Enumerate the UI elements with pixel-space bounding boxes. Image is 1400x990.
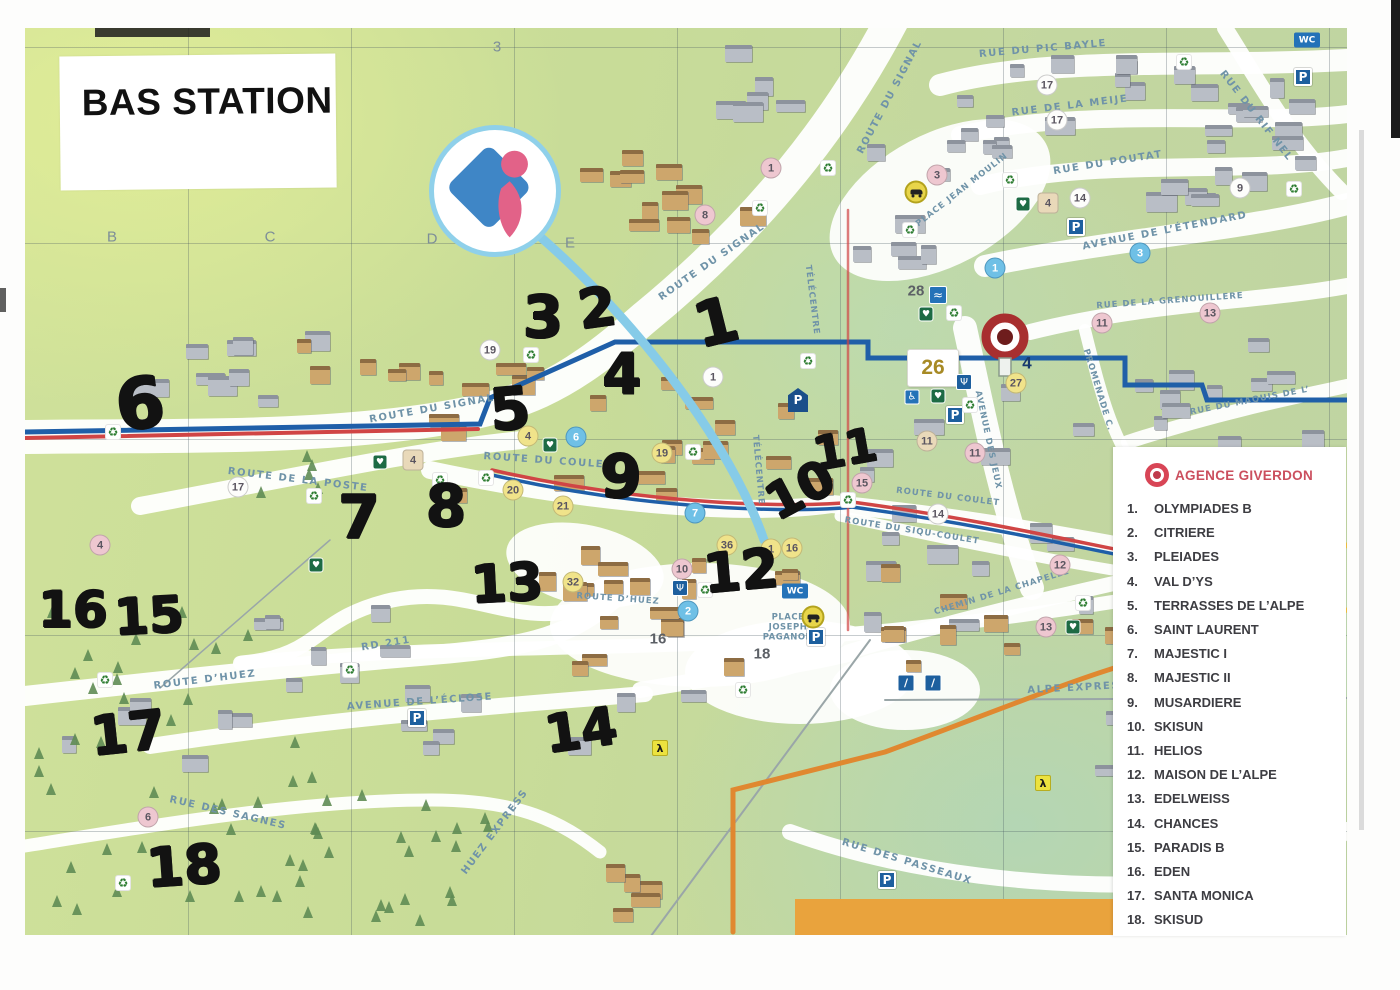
map-marker: 13	[1200, 303, 1221, 324]
handwritten-number: 7	[338, 483, 380, 553]
legend-item-label: SKISUD	[1154, 908, 1203, 932]
map-marker: 10	[672, 559, 693, 580]
legend-item: 3.PLEIADES	[1127, 545, 1336, 569]
map-marker: 21	[553, 496, 574, 517]
parking-icon: P	[1294, 68, 1312, 86]
map-marker: 9	[1230, 178, 1251, 199]
map-marker: 20	[503, 480, 524, 501]
map-marker: 18	[752, 644, 773, 665]
pool-icon: ≈	[929, 286, 947, 304]
map-marker: 11	[1092, 313, 1113, 334]
legend-item-label: PARADIS B	[1154, 836, 1225, 860]
recycle-icon: ♻	[1176, 54, 1192, 70]
page-title: BAS STATION	[82, 80, 336, 125]
legend-item-number: 9.	[1127, 691, 1154, 715]
map-marker: 6	[138, 807, 159, 828]
legend-item: 9.MUSARDIERE	[1127, 691, 1336, 715]
legend-item-number: 2.	[1127, 521, 1154, 545]
title-box: BAS STATION	[59, 54, 336, 191]
grid-label: 3	[493, 39, 501, 56]
map-marker: 26	[907, 349, 959, 387]
map-marker: 3	[927, 165, 948, 186]
map-marker: 3	[1130, 243, 1151, 264]
legend-item: 8.MAJESTIC II	[1127, 666, 1336, 690]
parking-icon: P	[807, 628, 825, 646]
map-marker: 27	[1006, 373, 1027, 394]
legend-item-number: 7.	[1127, 642, 1154, 666]
wc-icon: WC	[782, 584, 808, 599]
legend-item-number: 10.	[1127, 715, 1154, 739]
map-marker: 6	[566, 427, 587, 448]
legend-item-number: 5.	[1127, 594, 1154, 618]
defib-icon: ♥	[309, 558, 324, 573]
map-marker: 15	[852, 473, 873, 494]
map-marker: 17	[228, 477, 249, 498]
map-marker: 1	[985, 258, 1006, 279]
recycle-icon: ♻	[902, 222, 918, 238]
legend-item-number: 17.	[1127, 884, 1154, 908]
legend-item: 11.HELIOS	[1127, 739, 1336, 763]
handwritten-number: 14	[541, 696, 621, 765]
legend-header: AGENCE GIVERDON	[1145, 463, 1336, 487]
legend-item: 17.SANTA MONICA	[1127, 884, 1336, 908]
handwritten-number: 9	[600, 442, 642, 512]
grid-label: D	[427, 231, 438, 248]
legend-item-label: EDEN	[1154, 860, 1190, 884]
legend-item-label: MAJESTIC II	[1154, 666, 1231, 690]
map-marker: 1	[703, 367, 724, 388]
legend-item: 6.SAINT LAURENT	[1127, 618, 1336, 642]
recycle-icon: ♻	[800, 353, 816, 369]
skate-icon: /	[898, 675, 915, 692]
plug-icon: Ψ	[672, 580, 688, 596]
tourist-info-logo	[429, 125, 561, 257]
agency-name: AGENCE GIVERDON	[1175, 468, 1313, 483]
legend-item-label: EDELWEISS	[1154, 787, 1230, 811]
grid-label: B	[107, 229, 117, 246]
handwritten-number: 12	[701, 536, 781, 605]
handwritten-number: 3	[523, 283, 563, 351]
map-marker: 8	[695, 205, 716, 226]
map-marker: 4	[1038, 193, 1059, 214]
grid-label: E	[565, 235, 575, 252]
parking-icon: P	[878, 871, 896, 889]
recycle-icon: ♻	[735, 682, 751, 698]
legend-item: 2.CITRIERE	[1127, 521, 1336, 545]
map-marker: 19	[652, 443, 673, 464]
map-marker: 17	[1037, 75, 1058, 96]
map-marker: 11	[965, 443, 986, 464]
plug-icon: Ψ	[956, 374, 972, 390]
defib-icon: ♥	[543, 438, 558, 453]
legend-item: 7.MAJESTIC I	[1127, 642, 1336, 666]
map-marker: 16	[648, 629, 669, 650]
recycle-icon: ♻	[115, 875, 131, 891]
handwritten-number: 13	[469, 552, 544, 616]
legend-item-number: 3.	[1127, 545, 1154, 569]
car-icon	[905, 181, 928, 204]
legend-item-label: OLYMPIADES B	[1154, 497, 1252, 521]
recycle-icon: ♻	[962, 397, 978, 413]
defib-icon: ♥	[373, 455, 388, 470]
recycle-icon: ♻	[342, 662, 358, 678]
scan-artifact	[0, 288, 6, 312]
parking-icon: P	[1067, 218, 1085, 236]
map-marker: 1	[761, 158, 782, 179]
legend-item-label: HELIOS	[1154, 739, 1202, 763]
legend-item-number: 6.	[1127, 618, 1154, 642]
legend-item-label: MAISON DE L’ALPE	[1154, 763, 1277, 787]
legend-list: 1.OLYMPIADES B2.CITRIERE3.PLEIADES4.VAL …	[1127, 497, 1336, 933]
scanned-resort-map-page: ROUTE DU SIGNALROUTE DU SIGNALROUTE DU S…	[0, 0, 1400, 990]
recycle-icon: ♻	[306, 488, 322, 504]
handwritten-number: 16	[38, 581, 108, 639]
handwritten-number: 5	[487, 373, 533, 444]
page-edge-shadow	[1359, 130, 1364, 830]
legend-item-label: VAL D’YS	[1154, 570, 1213, 594]
scan-artifact	[1391, 0, 1400, 138]
map-marker: 4	[403, 450, 424, 471]
hiker-icon: λ	[652, 740, 668, 756]
legend-item-label: PLEIADES	[1154, 545, 1219, 569]
map-marker: 32	[563, 572, 584, 593]
legend-panel: AGENCE GIVERDON 1.OLYMPIADES B2.CITRIERE…	[1113, 447, 1346, 936]
legend-item-number: 18.	[1127, 908, 1154, 932]
map-marker: 17	[1047, 110, 1068, 131]
map-marker: 2	[678, 601, 699, 622]
legend-item: 12.MAISON DE L’ALPE	[1127, 763, 1336, 787]
legend-item-label: TERRASSES DE L’ALPE	[1154, 594, 1304, 618]
legend-item-number: 13.	[1127, 787, 1154, 811]
legend-item: 15.PARADIS B	[1127, 836, 1336, 860]
map-marker: 13	[1036, 617, 1057, 638]
map-marker: 4	[1017, 353, 1038, 374]
defib-icon: ♥	[1016, 197, 1031, 212]
legend-item-number: 1.	[1127, 497, 1154, 521]
legend-item: 4.VAL D’YS	[1127, 570, 1336, 594]
legend-item: 14.CHANCES	[1127, 812, 1336, 836]
legend-item-number: 8.	[1127, 666, 1154, 690]
legend-item: 10.SKISUN	[1127, 715, 1336, 739]
map-marker: 19	[480, 340, 501, 361]
handwritten-number: 8	[426, 472, 466, 540]
handwritten-number: 17	[87, 698, 168, 769]
map-marker: 4	[90, 535, 111, 556]
map-marker: 12	[1050, 555, 1071, 576]
hiker-icon: λ	[1035, 775, 1051, 791]
recycle-icon: ♻	[1286, 181, 1302, 197]
map-marker: 16	[782, 538, 803, 559]
sledge-icon: /	[925, 675, 942, 692]
handwritten-number: 4	[603, 343, 642, 408]
map-marker: 7	[685, 503, 706, 524]
legend-item-label: SANTA MONICA	[1154, 884, 1254, 908]
car-icon	[802, 606, 825, 629]
handwritten-number: 15	[113, 585, 186, 647]
handwritten-number: 18	[144, 832, 223, 900]
agency-logo-icon	[1145, 463, 1169, 487]
map-marker: 28	[906, 281, 927, 302]
recycle-icon: ♻	[1075, 595, 1091, 611]
map-marker: 14	[928, 504, 949, 525]
map-marker: 14	[1070, 188, 1091, 209]
scan-artifact	[95, 28, 210, 37]
wheelchair-icon: ♿	[905, 390, 920, 405]
legend-item-label: CITRIERE	[1154, 521, 1215, 545]
legend-item-number: 11.	[1127, 739, 1154, 763]
parking-icon: P	[408, 709, 426, 727]
legend-item-number: 4.	[1127, 570, 1154, 594]
recycle-icon: ♻	[478, 470, 494, 486]
recycle-icon: ♻	[1002, 172, 1018, 188]
handwritten-number: 11	[809, 417, 881, 481]
legend-item-label: CHANCES	[1154, 812, 1218, 836]
legend-item-number: 15.	[1127, 836, 1154, 860]
legend-item-number: 12.	[1127, 763, 1154, 787]
legend-item-label: MUSARDIERE	[1154, 691, 1241, 715]
legend-item-label: SKISUN	[1154, 715, 1203, 739]
legend-item: 5.TERRASSES DE L’ALPE	[1127, 594, 1336, 618]
legend-item-label: MAJESTIC I	[1154, 642, 1227, 666]
map-marker: 11	[917, 431, 938, 452]
recycle-icon: ♻	[97, 672, 113, 688]
defib-icon: ♥	[919, 307, 934, 322]
defib-icon: ♥	[1066, 620, 1081, 635]
wc-icon: WC	[1294, 33, 1320, 48]
grid-label: C	[265, 229, 276, 246]
legend-item-number: 16.	[1127, 860, 1154, 884]
legend-item: 1.OLYMPIADES B	[1127, 497, 1336, 521]
legend-item-label: SAINT LAURENT	[1154, 618, 1259, 642]
info-logo-glyph	[434, 130, 556, 252]
recycle-icon: ♻	[946, 305, 962, 321]
legend-item: 18.SKISUD	[1127, 908, 1336, 932]
recycle-icon: ♻	[685, 444, 701, 460]
legend-item-number: 14.	[1127, 812, 1154, 836]
defib-icon: ♥	[931, 389, 946, 404]
legend-item: 16.EDEN	[1127, 860, 1336, 884]
recycle-icon: ♻	[752, 200, 768, 216]
recycle-icon: ♻	[820, 160, 836, 176]
legend-item: 13.EDELWEISS	[1127, 787, 1336, 811]
